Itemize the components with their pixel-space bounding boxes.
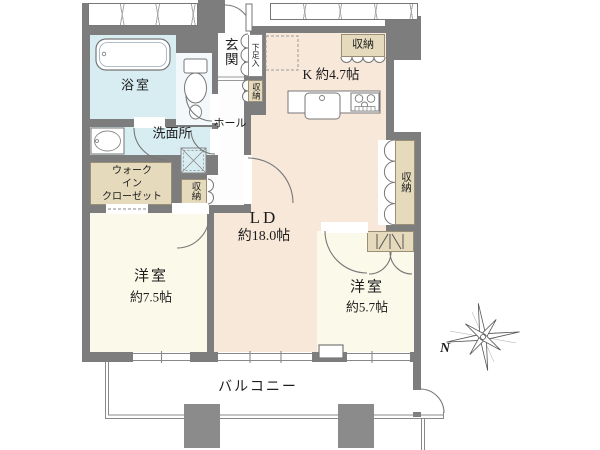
room-toilet: [176, 53, 212, 125]
compass: [446, 303, 519, 370]
hatched-area-right: [270, 3, 418, 20]
storage-genkan: [248, 80, 263, 102]
balcony: [104, 362, 444, 414]
storage-hall: [181, 179, 207, 204]
room-bathroom: [90, 35, 176, 119]
shoe-cabinet: [248, 34, 263, 77]
room-genkan-hall: [218, 33, 244, 205]
north-label: N: [440, 341, 450, 357]
room-washroom: [90, 127, 212, 155]
wall-top-right-chunk: [385, 16, 421, 60]
closet: [367, 231, 414, 252]
hatched-area-left: [88, 3, 198, 26]
kitchen-storage: [341, 34, 385, 57]
room-ld-west-strip: [251, 115, 266, 352]
floor-plan: 玄関 下足入 収納 浴室 洗面所 ホール ウォーク イン クローゼット 収納 K…: [0, 0, 600, 450]
room-walk-in-closet: [90, 162, 172, 205]
storage-side: [395, 140, 415, 225]
room-bedroom-west: [90, 213, 207, 352]
side-storage-door-area: [378, 140, 395, 225]
outside-notch: [394, 60, 421, 132]
wall-balcony-stub: [413, 412, 421, 417]
wall-balcony-right: [413, 362, 421, 390]
room-ld-southwest: [214, 213, 251, 352]
wall-entrance-left: [198, 0, 225, 34]
